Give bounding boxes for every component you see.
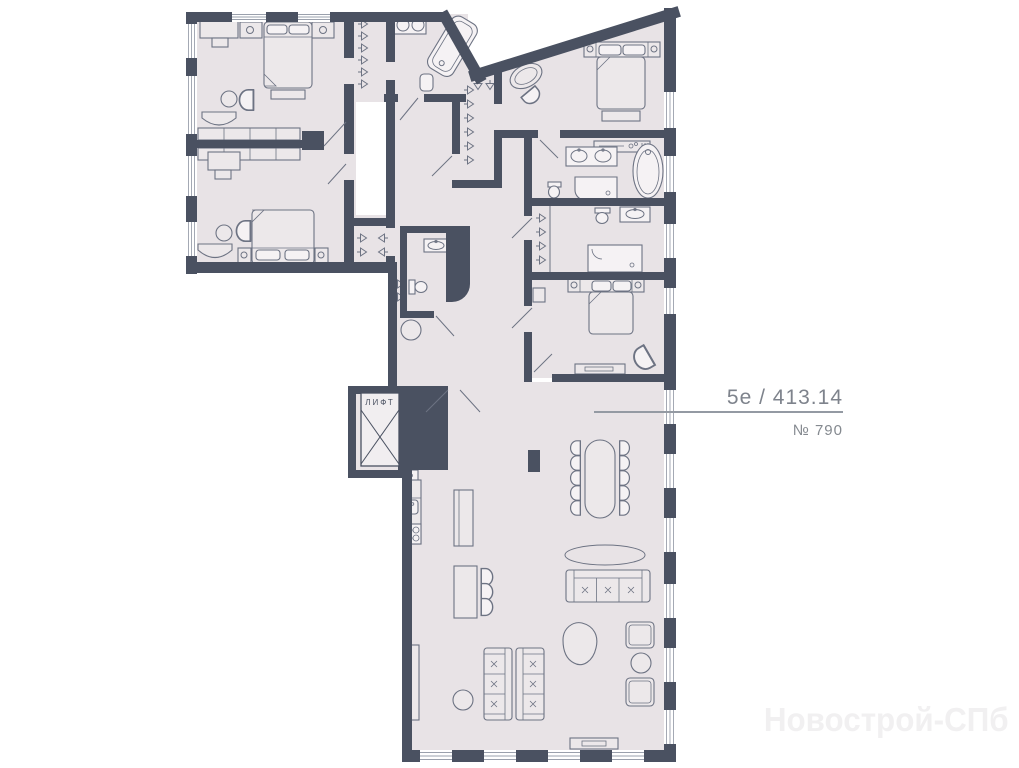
bar-stool: [481, 599, 492, 616]
double-bed: [264, 22, 312, 99]
window: [664, 648, 676, 682]
window: [612, 750, 644, 762]
sofa-right: [516, 648, 544, 720]
window: [664, 518, 676, 552]
window: [186, 76, 197, 134]
nightstand: [238, 248, 251, 264]
window: [664, 454, 676, 488]
window: [664, 156, 676, 192]
double-bed: [252, 210, 314, 264]
window: [420, 750, 452, 762]
window: [186, 24, 197, 58]
window: [664, 584, 676, 618]
desk-chair: [212, 38, 228, 47]
window: [664, 224, 676, 258]
desk: [208, 152, 240, 170]
floor-plan: ЛИФТ: [0, 0, 1019, 768]
nightstand: [315, 248, 328, 264]
elevator-label: ЛИФТ: [365, 398, 395, 407]
floor-plan-page: ЛИФТ 5e / 413.14 № 790 Новострой-СПб: [0, 0, 1019, 768]
watermark: Новострой-СПб: [764, 701, 1009, 739]
console-bottom: [570, 738, 618, 749]
round-table: [401, 320, 421, 340]
window: [664, 710, 676, 744]
window: [664, 288, 676, 314]
coffee-table: [563, 623, 597, 665]
window: [232, 12, 266, 22]
side-table: [453, 690, 473, 710]
sink: [424, 239, 449, 252]
unit-area-label: 5e / 413.14: [727, 386, 843, 410]
sofa-left: [484, 648, 512, 720]
dining-table: [585, 440, 615, 518]
armchair: [626, 678, 654, 706]
window: [186, 222, 197, 256]
shower: [575, 177, 617, 200]
window: [484, 750, 516, 762]
dining-set: [571, 440, 630, 518]
unit-number-label: № 790: [793, 422, 843, 439]
round-table: [631, 653, 651, 673]
elevator: ЛИФТ: [361, 393, 399, 466]
round-table: [216, 225, 232, 241]
shower: [588, 245, 642, 272]
armchair: [626, 622, 654, 648]
bar-stool: [481, 584, 492, 601]
column: [528, 450, 540, 472]
desk: [200, 20, 238, 38]
kitchen-island: [454, 566, 477, 618]
nightstand: [240, 22, 262, 38]
window: [186, 156, 197, 196]
toilet: [548, 182, 561, 198]
bed-bench: [271, 90, 305, 99]
window: [298, 12, 330, 22]
window: [548, 750, 580, 762]
bar-stool: [481, 569, 492, 586]
floor-areas: [190, 12, 672, 754]
window: [664, 390, 676, 424]
round-table: [221, 91, 237, 107]
double-vanity: [566, 147, 617, 166]
sofa-top: [566, 570, 650, 602]
bed-bench: [602, 111, 640, 121]
armchair: [239, 90, 253, 110]
pantry-cabinet: [454, 490, 473, 546]
nightstand: [312, 22, 334, 38]
desk-chair: [215, 170, 231, 179]
cabinet: [420, 74, 433, 91]
oval-bathtub: [633, 144, 663, 198]
window: [664, 92, 676, 128]
stair-shaft: [398, 386, 448, 470]
toilet: [409, 280, 427, 294]
sink: [620, 207, 650, 222]
console: [575, 364, 625, 374]
tv-stand: [533, 288, 545, 302]
leader-line: [594, 411, 843, 413]
armchair: [236, 221, 250, 241]
